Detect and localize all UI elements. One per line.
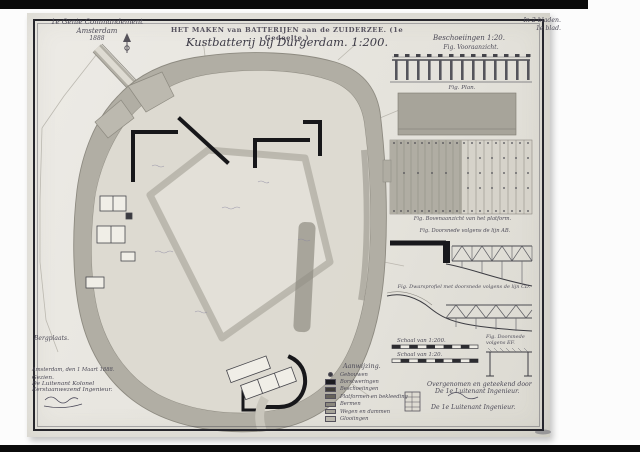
header-left-line2: Amsterdam bbox=[41, 27, 153, 36]
legend-swatch-icon bbox=[325, 416, 336, 421]
fig-trestle bbox=[486, 348, 532, 376]
plan-annotation-bergplaats: Bergplaats. bbox=[34, 335, 69, 342]
legend-label: Borstweringen bbox=[340, 379, 379, 385]
caption-xsec2: Fig. Dwarsprofiel met doorsnede volgens … bbox=[385, 284, 543, 290]
caption-trestle-line2: volgens EF. bbox=[486, 340, 556, 346]
legend-label: Wegen en dammen bbox=[340, 409, 390, 415]
drawing-sheet: 1e Genie Commandement Amsterdam 1888 HET… bbox=[27, 13, 550, 437]
fig-cross-section-ab bbox=[390, 241, 532, 286]
sheet-number-line2: 1e blad. bbox=[485, 25, 561, 33]
legend-label: Gebouwen bbox=[340, 372, 368, 378]
legend-row: Platformen en bekleeding bbox=[325, 393, 437, 400]
legend-label: Platformen en bekleeding bbox=[340, 394, 408, 400]
legend-swatch-icon bbox=[325, 402, 336, 407]
fig-cross-section-cd bbox=[387, 292, 532, 331]
legend-row: Bermen bbox=[325, 401, 437, 408]
legend-label: Glooiingen bbox=[340, 416, 368, 422]
legend-swatch-icon bbox=[325, 409, 336, 414]
legend-label: Beschoeiingen bbox=[340, 386, 378, 392]
header-right-line1: Beschoeiingen 1:20. bbox=[419, 34, 519, 42]
legend-row: Glooiingen bbox=[325, 415, 437, 422]
header-left-line1: 1e Genie Commandement bbox=[41, 18, 153, 27]
caption-xsec1: Fig. Doorsnede volgens de lijn AB. bbox=[390, 228, 540, 234]
caption-plan: Fig. Plan. bbox=[407, 85, 517, 91]
fig-palisade-elevation bbox=[390, 54, 532, 82]
photo-bottom-black-bar bbox=[0, 445, 640, 452]
sheet-number-line1: In 2 bladen. bbox=[485, 17, 561, 25]
signature-right-line3: De 1e Luitenant Ingenieur. bbox=[431, 404, 545, 411]
fig-platform-plan bbox=[383, 140, 532, 214]
sheet-number-block: In 2 bladen. 1e blad. bbox=[485, 17, 561, 32]
legend-swatch-icon bbox=[328, 372, 333, 377]
header-left-block: 1e Genie Commandement Amsterdam 1888 bbox=[41, 18, 153, 44]
legend-row: Gebouwen bbox=[325, 371, 437, 378]
caption-platform: Fig. Bovenaanzicht van het platform. bbox=[390, 216, 535, 222]
approval-date: Amsterdam, den 1 Maart 1888. bbox=[32, 367, 152, 373]
ink-smudge bbox=[535, 430, 551, 435]
fig-plan-rectangle bbox=[398, 93, 516, 135]
scalebar2-label: Schaal van 1:20. bbox=[397, 352, 442, 358]
signature-right-line1: Overgenomen en geteekend door bbox=[427, 381, 545, 388]
signature-block-right: Overgenomen en geteekend door De 1e Luit… bbox=[427, 381, 545, 411]
legend-swatch-icon bbox=[325, 379, 336, 384]
legend: Gebouwen Borstweringen Beschoeiingen Pla… bbox=[325, 371, 437, 423]
approval-function: Eerstaanwezend Ingenieur. bbox=[32, 387, 152, 393]
approval-block: Amsterdam, den 1 Maart 1888. Gezien. De … bbox=[32, 367, 152, 393]
legend-swatch-icon bbox=[325, 387, 336, 392]
sheet-title-script: Kustbatterij bij Durgerdam. 1:200. bbox=[165, 35, 409, 49]
legend-row: Wegen en dammen bbox=[325, 408, 437, 415]
caption-trestle: Fig. Doorsnede volgens EF. bbox=[486, 334, 556, 346]
legend-row: Beschoeiingen bbox=[325, 386, 437, 393]
entrance-road bbox=[260, 398, 265, 430]
legend-title: Aanwijzing. bbox=[343, 362, 423, 370]
legend-swatch-icon bbox=[325, 394, 336, 399]
scalebar1-label: Schaal van 1:200. bbox=[397, 338, 446, 344]
header-right-line2: Fig. Vooraanzicht. bbox=[427, 44, 515, 51]
legend-row: Borstweringen bbox=[325, 378, 437, 385]
header-left-line3: 1888 bbox=[41, 35, 153, 44]
archival-photo-of-fort-plan: 1e Genie Commandement Amsterdam 1888 HET… bbox=[0, 0, 640, 452]
legend-label: Bermen bbox=[340, 401, 361, 407]
signature-right-line2: De 1e Luitenant Ingenieur. bbox=[435, 388, 545, 395]
